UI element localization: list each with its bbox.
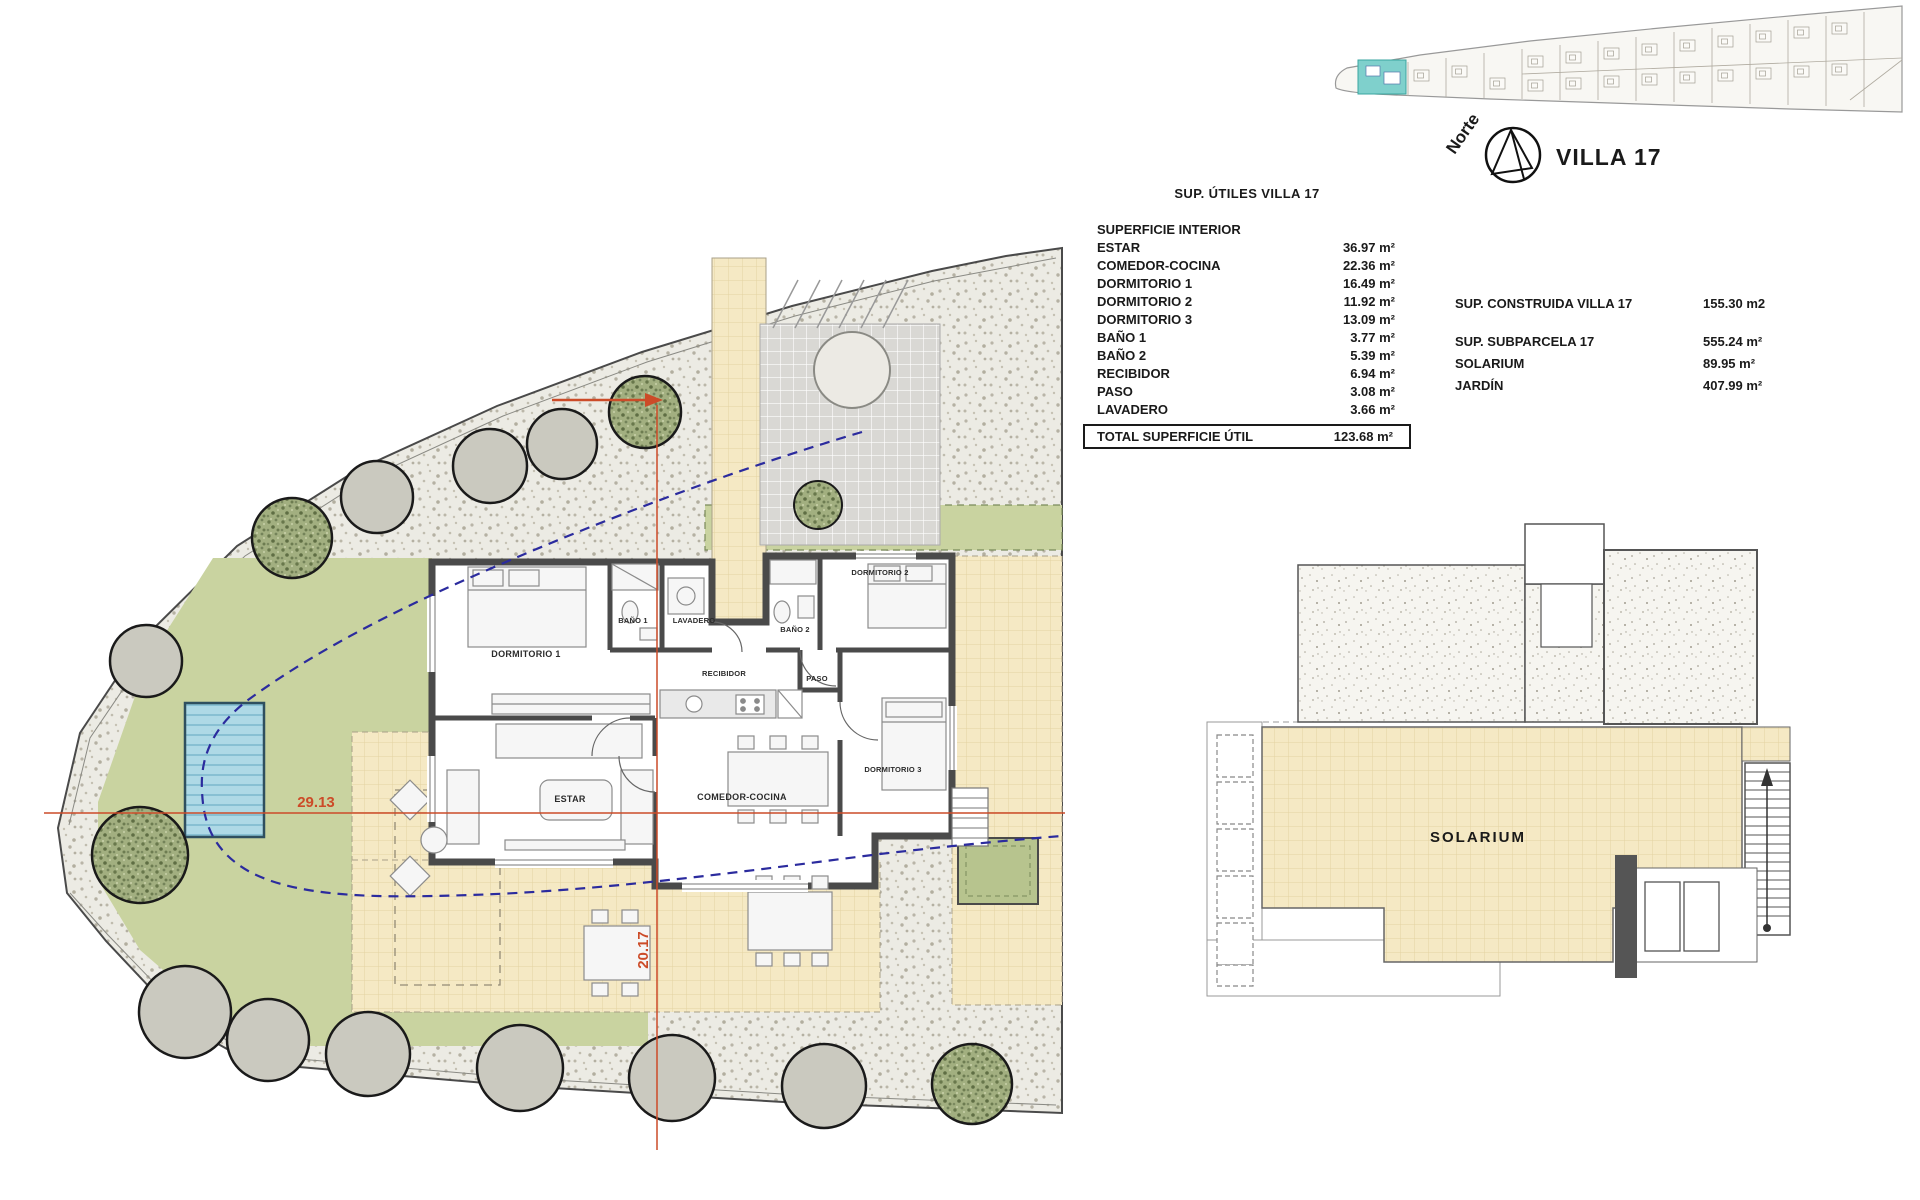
table-row: LAVADERO3.66 m² bbox=[1083, 401, 1411, 419]
room-label-dormitorio-3: DORMITORIO 3 bbox=[864, 765, 921, 774]
entry-path bbox=[712, 258, 766, 622]
row-label: BAÑO 2 bbox=[1097, 347, 1146, 365]
site-plan: DORMITORIO 1 BAÑO 1 LAVADERO RECIBIDOR B… bbox=[44, 248, 1065, 1150]
tree-gray bbox=[453, 429, 527, 503]
row-label: DORMITORIO 2 bbox=[1097, 293, 1192, 311]
areas-section-header: SUPERFICIE INTERIOR bbox=[1083, 221, 1411, 239]
row-value: 13.09 m² bbox=[1343, 311, 1395, 329]
row-label: RECIBIDOR bbox=[1097, 365, 1170, 383]
total-row: TOTAL SUPERFICIE ÚTIL 123.68 m² bbox=[1083, 424, 1411, 449]
row-value: 16.49 m² bbox=[1343, 275, 1395, 293]
table-row: DORMITORIO 116.49 m² bbox=[1083, 275, 1411, 293]
room-label-bano-1: BAÑO 1 bbox=[618, 616, 648, 625]
pergola bbox=[958, 838, 1038, 904]
room-label-lavadero: LAVADERO bbox=[673, 616, 716, 625]
table-row: COMEDOR-COCINA22.36 m² bbox=[1083, 257, 1411, 275]
room-label-recibidor: RECIBIDOR bbox=[702, 669, 746, 678]
room-label-dormitorio-2: DORMITORIO 2 bbox=[851, 568, 908, 577]
table-row: SUP. SUBPARCELA 17555.24 m² bbox=[1455, 334, 1800, 349]
room-label-estar: ESTAR bbox=[554, 794, 586, 804]
areas-table-title: SUP. ÚTILES VILLA 17 bbox=[1083, 186, 1411, 201]
tree-green bbox=[609, 376, 681, 448]
row-label: ESTAR bbox=[1097, 239, 1140, 257]
north-compass bbox=[1486, 128, 1540, 182]
solarium-label: SOLARIUM bbox=[1430, 829, 1526, 846]
room-label-comedor: COMEDOR-COCINA bbox=[697, 792, 787, 802]
row-value: 3.66 m² bbox=[1350, 401, 1395, 419]
row-value: 407.99 m² bbox=[1703, 378, 1762, 393]
tree-gray bbox=[629, 1035, 715, 1121]
tree-gray bbox=[341, 461, 413, 533]
dim-horizontal: 29.13 bbox=[297, 794, 335, 811]
roof-left bbox=[1298, 565, 1525, 722]
total-value: 123.68 m² bbox=[1334, 429, 1393, 444]
row-label: SUP. CONSTRUIDA VILLA 17 bbox=[1455, 296, 1703, 311]
row-label: PASO bbox=[1097, 383, 1133, 401]
terrace-right bbox=[952, 556, 1062, 1005]
row-label: JARDÍN bbox=[1455, 378, 1703, 393]
row-value: 3.77 m² bbox=[1350, 329, 1395, 347]
row-value: 36.97 m² bbox=[1343, 239, 1395, 257]
row-value: 22.36 m² bbox=[1343, 257, 1395, 275]
room-label-bano-2: BAÑO 2 bbox=[780, 625, 810, 634]
tree-green bbox=[794, 481, 842, 529]
summary-table: SUP. CONSTRUIDA VILLA 17155.30 m2 SUP. S… bbox=[1455, 296, 1800, 400]
tree-green bbox=[92, 807, 188, 903]
table-row: SUP. CONSTRUIDA VILLA 17155.30 m2 bbox=[1455, 296, 1800, 311]
tree-green bbox=[932, 1044, 1012, 1124]
row-label: LAVADERO bbox=[1097, 401, 1168, 419]
tree-gray bbox=[139, 966, 231, 1058]
row-value: 5.39 m² bbox=[1350, 347, 1395, 365]
row-value: 89.95 m² bbox=[1703, 356, 1755, 371]
row-label: DORMITORIO 1 bbox=[1097, 275, 1192, 293]
row-label: DORMITORIO 3 bbox=[1097, 311, 1192, 329]
row-label: SUP. SUBPARCELA 17 bbox=[1455, 334, 1703, 349]
table-row: DORMITORIO 313.09 m² bbox=[1083, 311, 1411, 329]
villa-title: VILLA 17 bbox=[1556, 144, 1662, 171]
roof-plan: SOLARIUM bbox=[1207, 524, 1790, 996]
table-row: SOLARIUM89.95 m² bbox=[1455, 356, 1800, 371]
pergola-squares bbox=[1217, 735, 1253, 986]
locator-map bbox=[1335, 6, 1902, 112]
table-row: BAÑO 25.39 m² bbox=[1083, 347, 1411, 365]
tree-gray bbox=[326, 1012, 410, 1096]
tree-gray bbox=[477, 1025, 563, 1111]
row-value: 6.94 m² bbox=[1350, 365, 1395, 383]
table-row: DORMITORIO 211.92 m² bbox=[1083, 293, 1411, 311]
plan-canvas: DORMITORIO 1 BAÑO 1 LAVADERO RECIBIDOR B… bbox=[0, 0, 1920, 1200]
tree-gray bbox=[782, 1044, 866, 1128]
table-row: PASO3.08 m² bbox=[1083, 383, 1411, 401]
total-label: TOTAL SUPERFICIE ÚTIL bbox=[1097, 429, 1253, 444]
dim-vertical: 20.17 bbox=[635, 931, 652, 969]
row-label: SOLARIUM bbox=[1455, 356, 1703, 371]
table-row: RECIBIDOR6.94 m² bbox=[1083, 365, 1411, 383]
row-label: BAÑO 1 bbox=[1097, 329, 1146, 347]
roof-slot bbox=[1541, 584, 1592, 647]
room-label-dormitorio-1: DORMITORIO 1 bbox=[491, 649, 560, 659]
drawing-sheet: DORMITORIO 1 BAÑO 1 LAVADERO RECIBIDOR B… bbox=[0, 0, 1920, 1200]
roof-equipment bbox=[1615, 855, 1757, 978]
solarium-deck-top-right bbox=[1742, 727, 1790, 761]
row-label: COMEDOR-COCINA bbox=[1097, 257, 1221, 275]
row-value: 3.08 m² bbox=[1350, 383, 1395, 401]
roof-chimney bbox=[1525, 524, 1604, 584]
table-row: ESTAR36.97 m² bbox=[1083, 239, 1411, 257]
roof-right bbox=[1604, 550, 1757, 724]
table-row: JARDÍN407.99 m² bbox=[1455, 378, 1800, 393]
locator-highlight-villa bbox=[1358, 60, 1406, 94]
row-value: 555.24 m² bbox=[1703, 334, 1762, 349]
tree-gray bbox=[227, 999, 309, 1081]
useful-areas-table: SUP. ÚTILES VILLA 17 SUPERFICIE INTERIOR… bbox=[1083, 186, 1411, 449]
patio-tree bbox=[814, 332, 890, 408]
room-label-paso: PASO bbox=[806, 674, 828, 683]
tree-gray bbox=[527, 409, 597, 479]
tree-green bbox=[252, 498, 332, 578]
tree-gray bbox=[110, 625, 182, 697]
exterior-steps bbox=[952, 788, 988, 846]
row-value: 155.30 m2 bbox=[1703, 296, 1765, 311]
table-row: BAÑO 13.77 m² bbox=[1083, 329, 1411, 347]
row-value: 11.92 m² bbox=[1344, 293, 1395, 311]
